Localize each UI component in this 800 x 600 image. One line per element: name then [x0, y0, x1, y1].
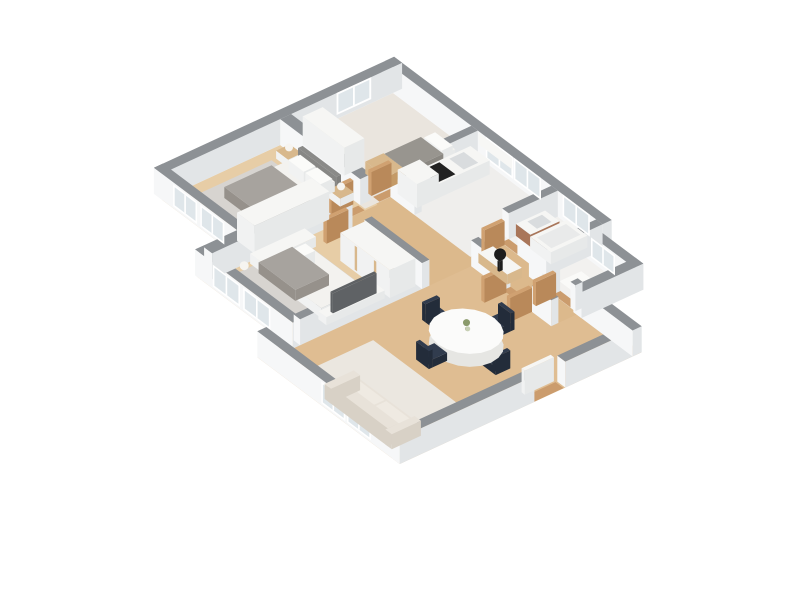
floorplan-3d-render [0, 0, 800, 600]
dining-flowers-a [463, 319, 470, 326]
door-living-left-side-sw [481, 276, 484, 302]
window-small-room-mullion [353, 87, 355, 106]
window-bedroom2-b-mullion [256, 299, 258, 318]
wall-entry-north-side-se [633, 326, 642, 356]
console-lamp-stem-side-sw [498, 261, 500, 272]
wall-hall-bedroom2-east-side-se [422, 260, 429, 289]
window-wc-mullion [602, 248, 604, 265]
console-lamp [494, 248, 506, 260]
dining-flowers-b [465, 326, 470, 331]
window-bathroom-mullion [575, 206, 577, 225]
door-wc-side-sw [533, 280, 536, 306]
dining-chair-west-back-side-sw [422, 302, 425, 322]
dining-chair-south-back-side-se [429, 349, 433, 369]
dining-chair-north-back-side-se [511, 312, 515, 332]
window-kitchen-2-mullion [527, 169, 529, 188]
window-bedroom1-b-mullion [212, 215, 214, 234]
window-bedroom2-a-mullion [226, 276, 228, 295]
window-bedroom1-a-mullion [184, 195, 186, 214]
door-entry-side-sw [522, 368, 525, 394]
floorplan-canvas [0, 0, 800, 600]
console-lamp-stem-side-se [499, 260, 503, 272]
bedroom1-lamp-left [285, 143, 293, 151]
bedroom1-lamp-right [337, 182, 345, 190]
door-small-room-side-sw [368, 170, 371, 196]
wall-wc-sw-east-side-sw [571, 282, 576, 312]
bedroom2-tv-side-sw [331, 292, 333, 314]
bedroom2-wardrobe-trim-1 [355, 246, 357, 272]
wall-wc-sw-east-side-se [575, 282, 582, 311]
wall-foyer-living-east-side-se [551, 297, 558, 326]
wall-bedroom2-living-side-sw [294, 314, 300, 345]
bedroom2-floor-lamp [240, 261, 249, 270]
